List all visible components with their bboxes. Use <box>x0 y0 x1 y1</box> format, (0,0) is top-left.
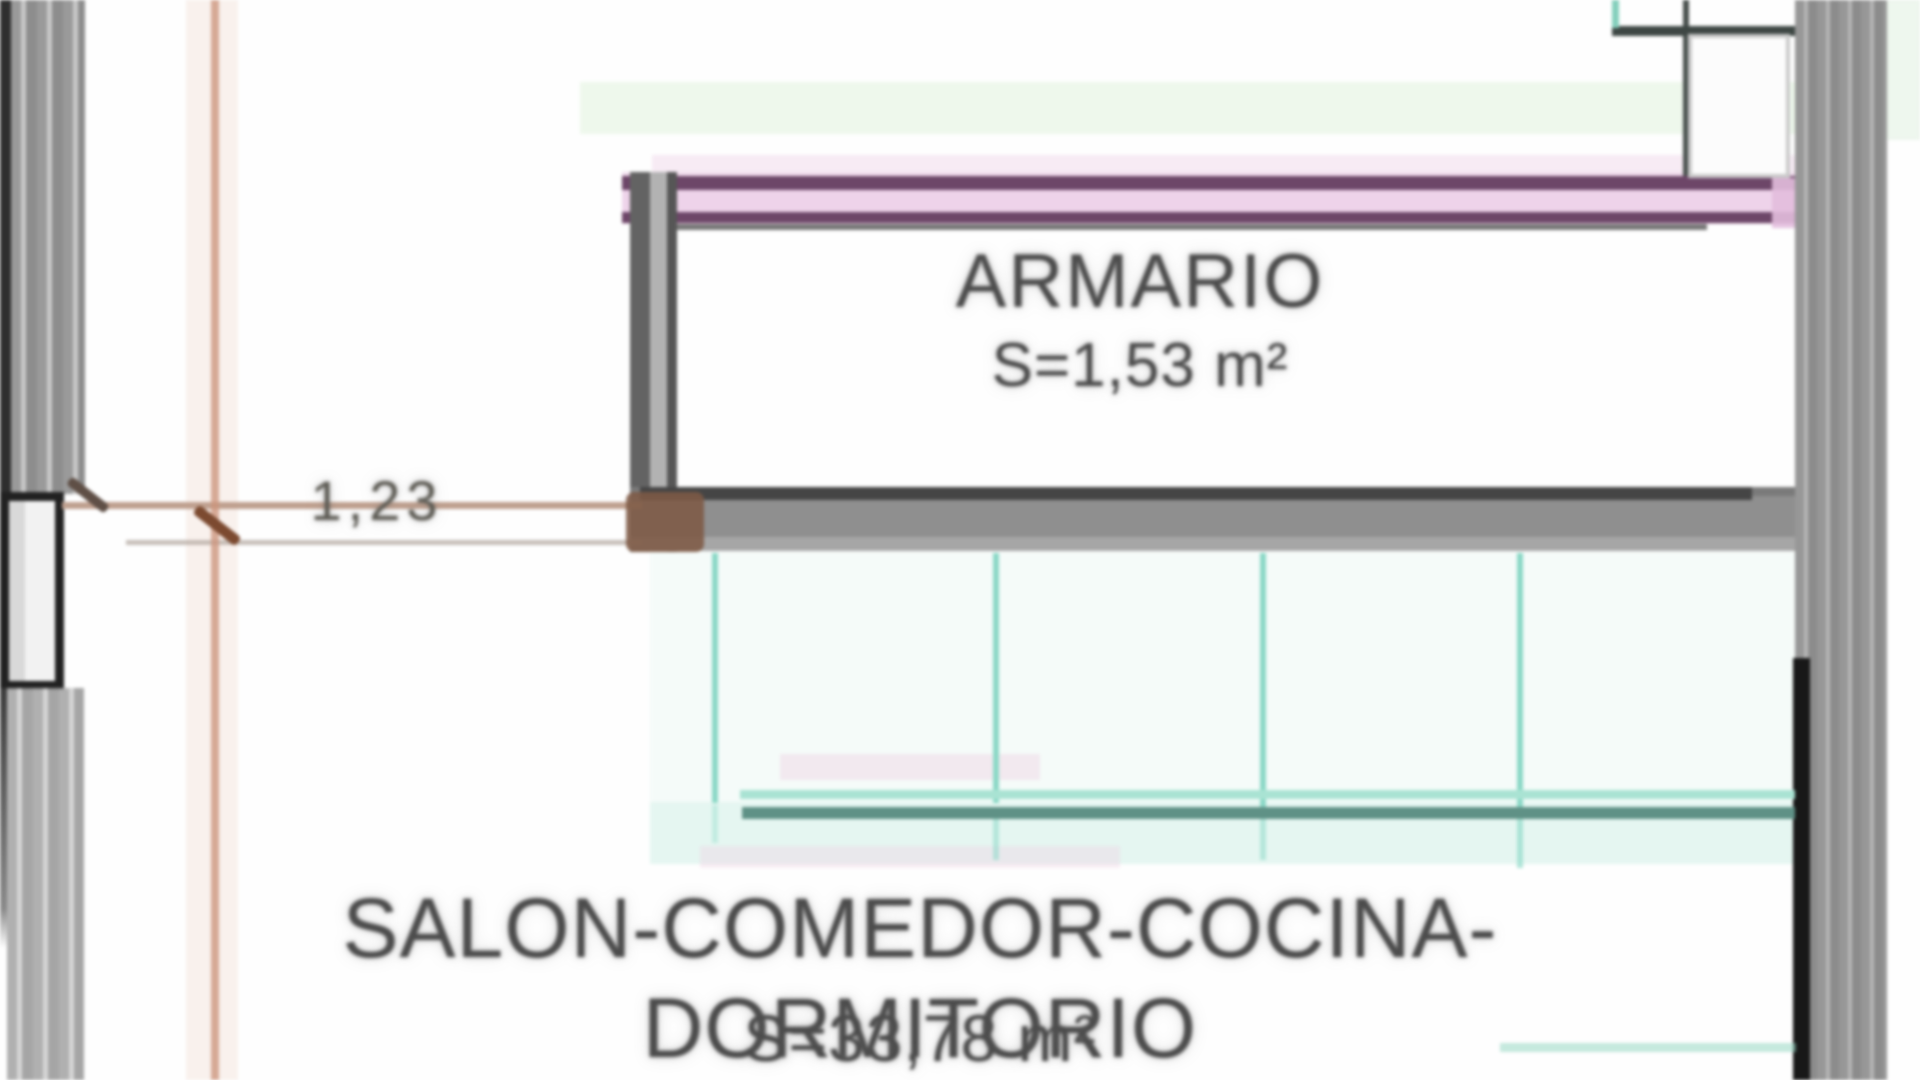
partition-wall-pink <box>622 172 1807 224</box>
glazing-sill-light <box>740 790 1795 799</box>
glazing-line-3 <box>1260 553 1266 807</box>
closet-bottom-wall-edge <box>640 487 1752 500</box>
right-wall-black-edge <box>1793 658 1810 1080</box>
room-area-salon: S=33,78 m² <box>80 1002 1760 1074</box>
glazing-tail-1 <box>712 805 718 843</box>
shaft-outline-box <box>1688 34 1790 178</box>
wash-green-top <box>580 82 1820 134</box>
dimension-corner-blob <box>626 492 704 552</box>
room-area-armario: S=1,53 m² <box>850 330 1430 402</box>
glazing-line-2 <box>993 553 999 803</box>
glazing-line-4 <box>1517 553 1523 807</box>
wash-pink-panel-a <box>780 754 1040 780</box>
dimension-axis-line <box>211 0 219 1080</box>
glazing-line-1 <box>712 553 718 803</box>
room-label-armario: ARMARIO <box>850 237 1430 327</box>
top-right-teal-stub <box>1612 0 1619 28</box>
left-wall-upper <box>11 0 85 494</box>
left-wall-edge <box>0 0 11 494</box>
wash-pink-panel-b <box>700 846 1120 868</box>
partition-pink-faint-top <box>652 155 1805 173</box>
dimension-line-secondary <box>126 540 642 545</box>
dimension-label: 1,23 <box>292 468 462 533</box>
wash-green-right <box>1887 0 1920 140</box>
floor-plan: 1,23 ARMARIO S=1,53 m² SALON-COMEDOR-COC… <box>0 0 1920 1080</box>
glazing-sill-dark <box>742 807 1795 819</box>
left-wall-lower-edge <box>0 688 7 948</box>
door-jamb-box <box>0 492 64 690</box>
left-wall-lower <box>7 688 84 1080</box>
floor-plan-canvas: 1,23 ARMARIO S=1,53 m² SALON-COMEDOR-COC… <box>0 0 1920 1080</box>
closet-inner-top-line <box>677 224 1707 230</box>
